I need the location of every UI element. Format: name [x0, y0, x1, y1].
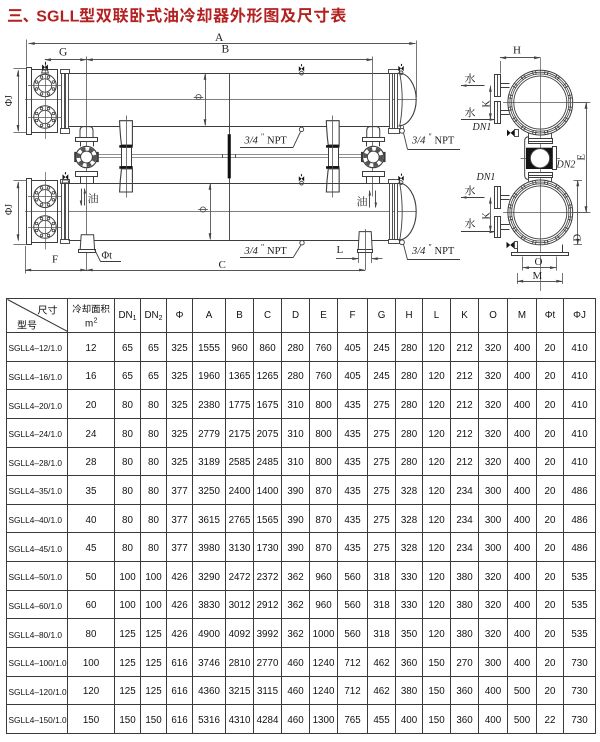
svg-text:DN1: DN1 [476, 172, 496, 183]
svg-text:3/4: 3/4 [244, 246, 259, 257]
svg-text:NPT: NPT [267, 136, 287, 147]
svg-text:D: D [573, 234, 584, 242]
svg-text:L: L [337, 244, 344, 256]
svg-text:NPT: NPT [267, 246, 287, 257]
svg-text:C: C [219, 259, 226, 271]
svg-text:Φt: Φt [102, 251, 113, 262]
svg-text:″: ″ [429, 132, 432, 141]
svg-text:DN1: DN1 [472, 122, 492, 133]
svg-text:K: K [482, 100, 493, 108]
svg-text:″: ″ [429, 242, 432, 251]
svg-text:ΦJ: ΦJ [4, 95, 15, 106]
svg-text:B: B [222, 44, 230, 56]
svg-text:″: ″ [261, 242, 264, 251]
svg-text:2: 2 [94, 318, 98, 325]
svg-text:A: A [215, 32, 224, 44]
svg-text:F: F [52, 253, 58, 265]
svg-text:ΦJ: ΦJ [4, 204, 15, 215]
svg-text:3/4: 3/4 [244, 136, 259, 147]
svg-text:″: ″ [261, 132, 264, 141]
svg-text:DN2: DN2 [556, 159, 576, 170]
svg-text:3/4: 3/4 [411, 136, 426, 147]
svg-text:O: O [535, 256, 543, 268]
svg-text:E: E [576, 154, 587, 160]
svg-text:K: K [482, 212, 493, 220]
svg-text:G: G [59, 47, 67, 59]
svg-text:3/4: 3/4 [411, 246, 426, 257]
svg-text:m: m [85, 319, 93, 330]
svg-text:M: M [533, 270, 543, 282]
svg-text:NPT: NPT [435, 246, 455, 257]
svg-text:H: H [513, 45, 521, 57]
svg-text:NPT: NPT [435, 136, 455, 147]
